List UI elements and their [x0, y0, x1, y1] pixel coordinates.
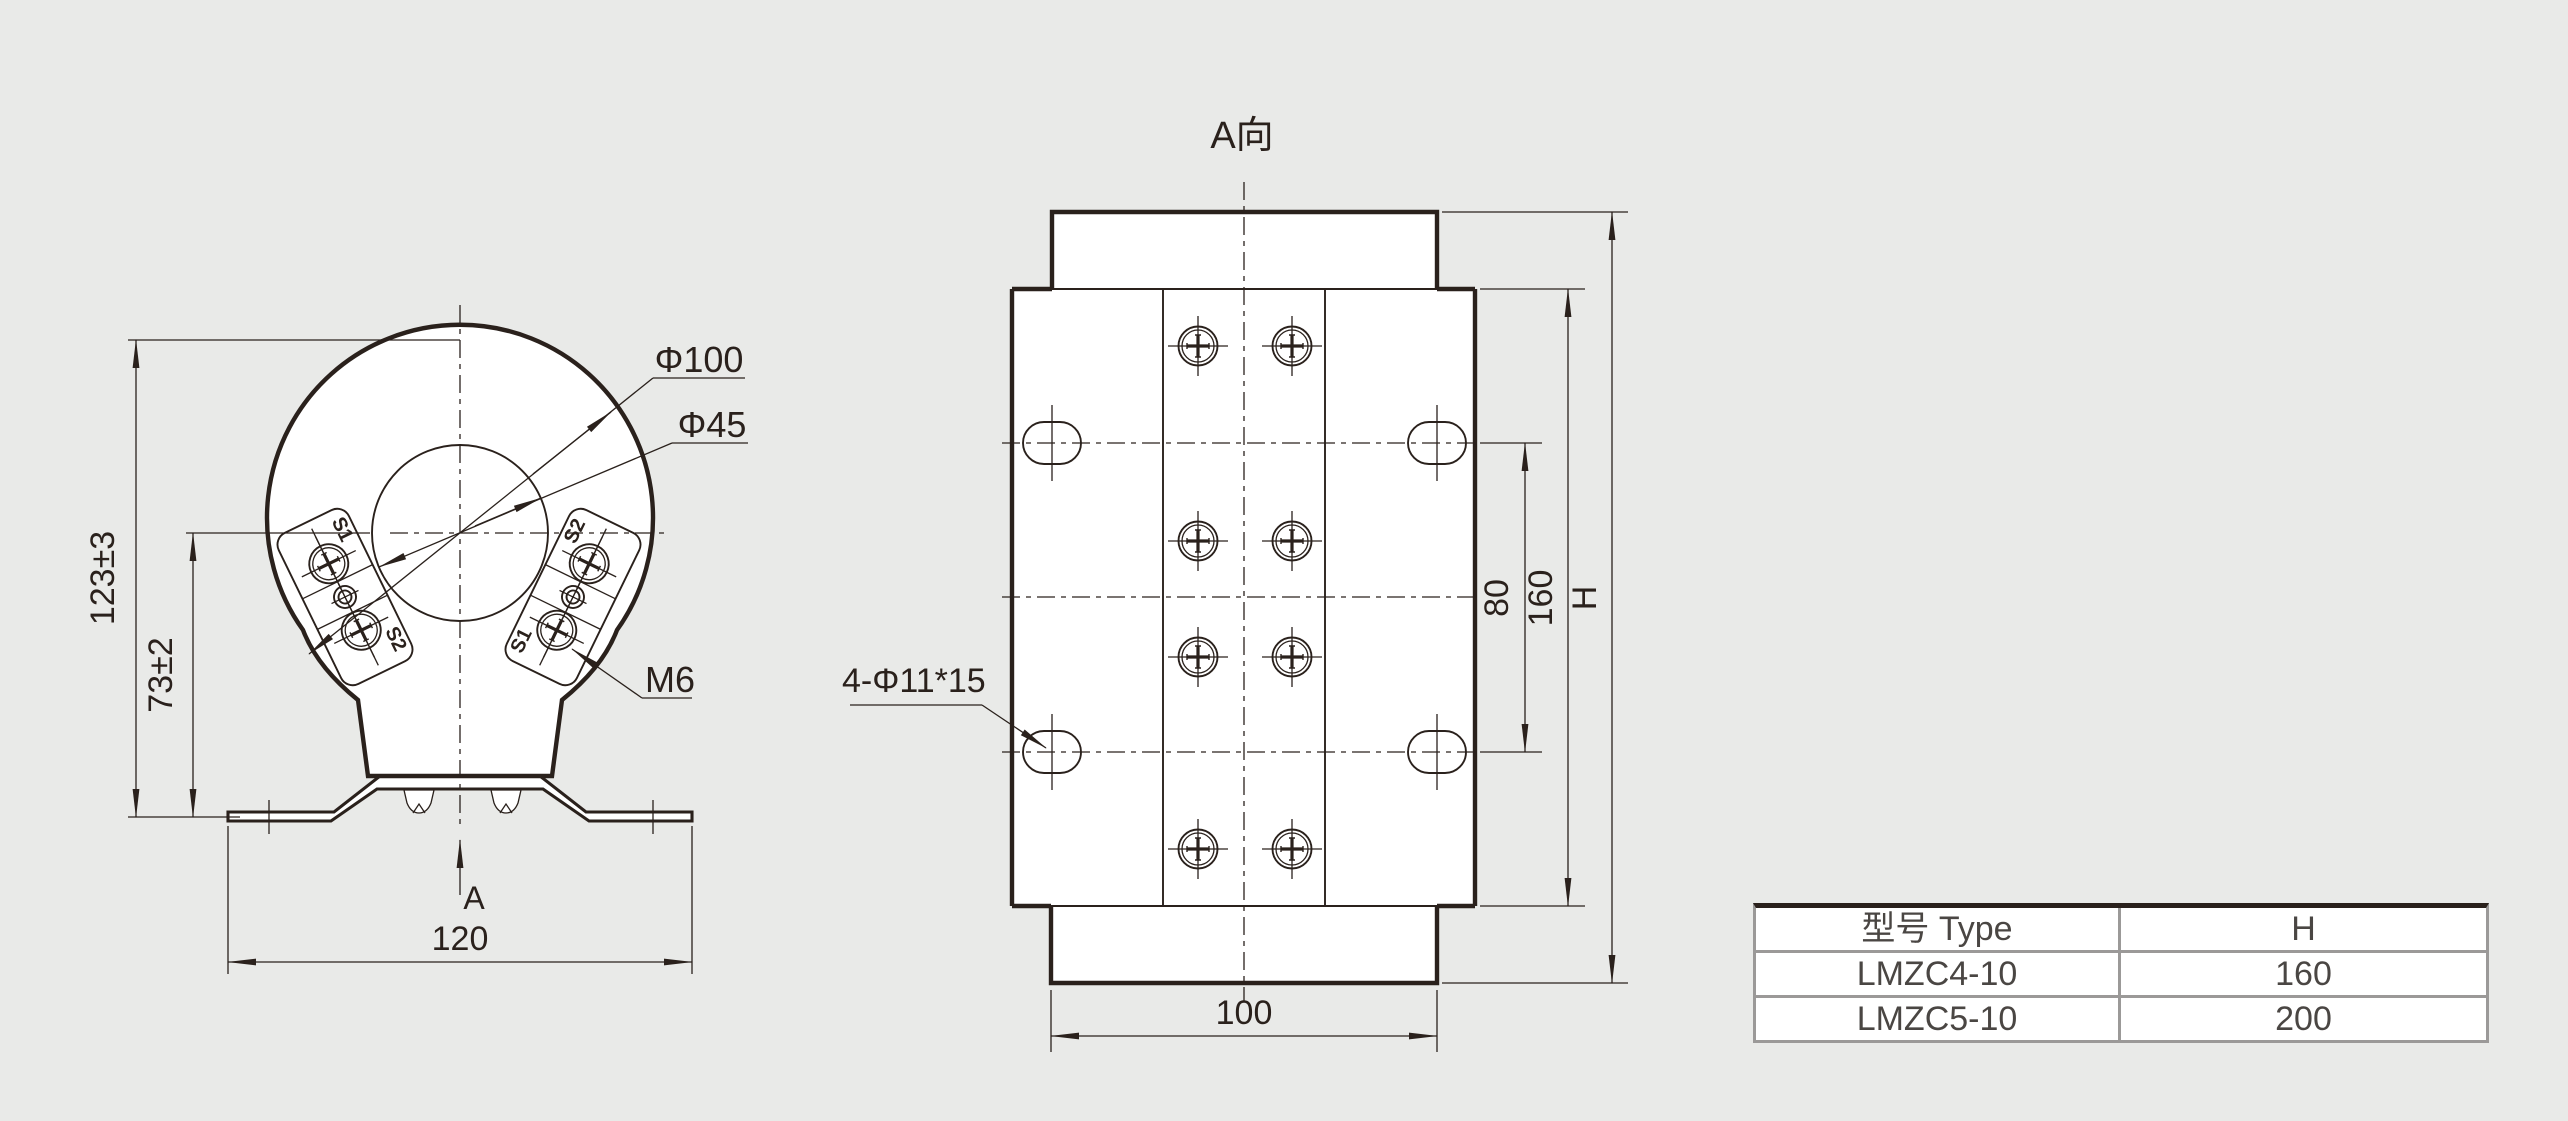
dimension-base-width: 100	[1051, 990, 1437, 1052]
engineering-drawing-page: { "colors": { "background": "#e9eae8", "…	[0, 0, 2568, 1121]
bore-diameter-label: Φ45	[678, 404, 747, 445]
spec-h-value: 160	[2121, 953, 2486, 995]
spec-header-type: 型号 Type	[1756, 908, 2121, 950]
table-row: LMZC5-10 200	[1756, 998, 2486, 1043]
body-height-label: 160	[1522, 570, 1560, 627]
spec-h-value: 200	[2121, 998, 2486, 1040]
outer-diameter-label: Φ100	[655, 339, 744, 380]
slot-note-label: 4-Φ11*15	[842, 662, 986, 700]
table-row: LMZC4-10 160	[1756, 953, 2486, 998]
view-direction-arrow: A	[460, 840, 485, 916]
a-view-title: A向	[1210, 115, 1273, 157]
terminal-thread-label: M6	[645, 659, 695, 700]
spec-table-header-row: 型号 Type H	[1756, 908, 2486, 953]
base-width-label: 100	[1216, 994, 1273, 1032]
bracket-screw-heads	[404, 790, 521, 813]
center-height-label: 73±2	[142, 637, 180, 712]
bracket-width-label: 120	[432, 920, 489, 958]
front-view: S1 S2 S2 S1 123±3 73±2 120	[84, 305, 748, 974]
view-arrow-label: A	[463, 880, 485, 916]
spec-table: 型号 Type H LMZC4-10 160 LMZC5-10 200	[1753, 903, 2489, 1043]
overall-height-h-label: H	[1566, 586, 1604, 611]
a-view: A向	[842, 115, 1628, 1052]
spec-header-h: H	[2121, 908, 2486, 950]
overall-height-label: 123±3	[84, 531, 122, 625]
spec-type-value: LMZC5-10	[1756, 998, 2121, 1040]
slot-spacing-label: 80	[1478, 579, 1516, 617]
spec-type-value: LMZC4-10	[1756, 953, 2121, 995]
